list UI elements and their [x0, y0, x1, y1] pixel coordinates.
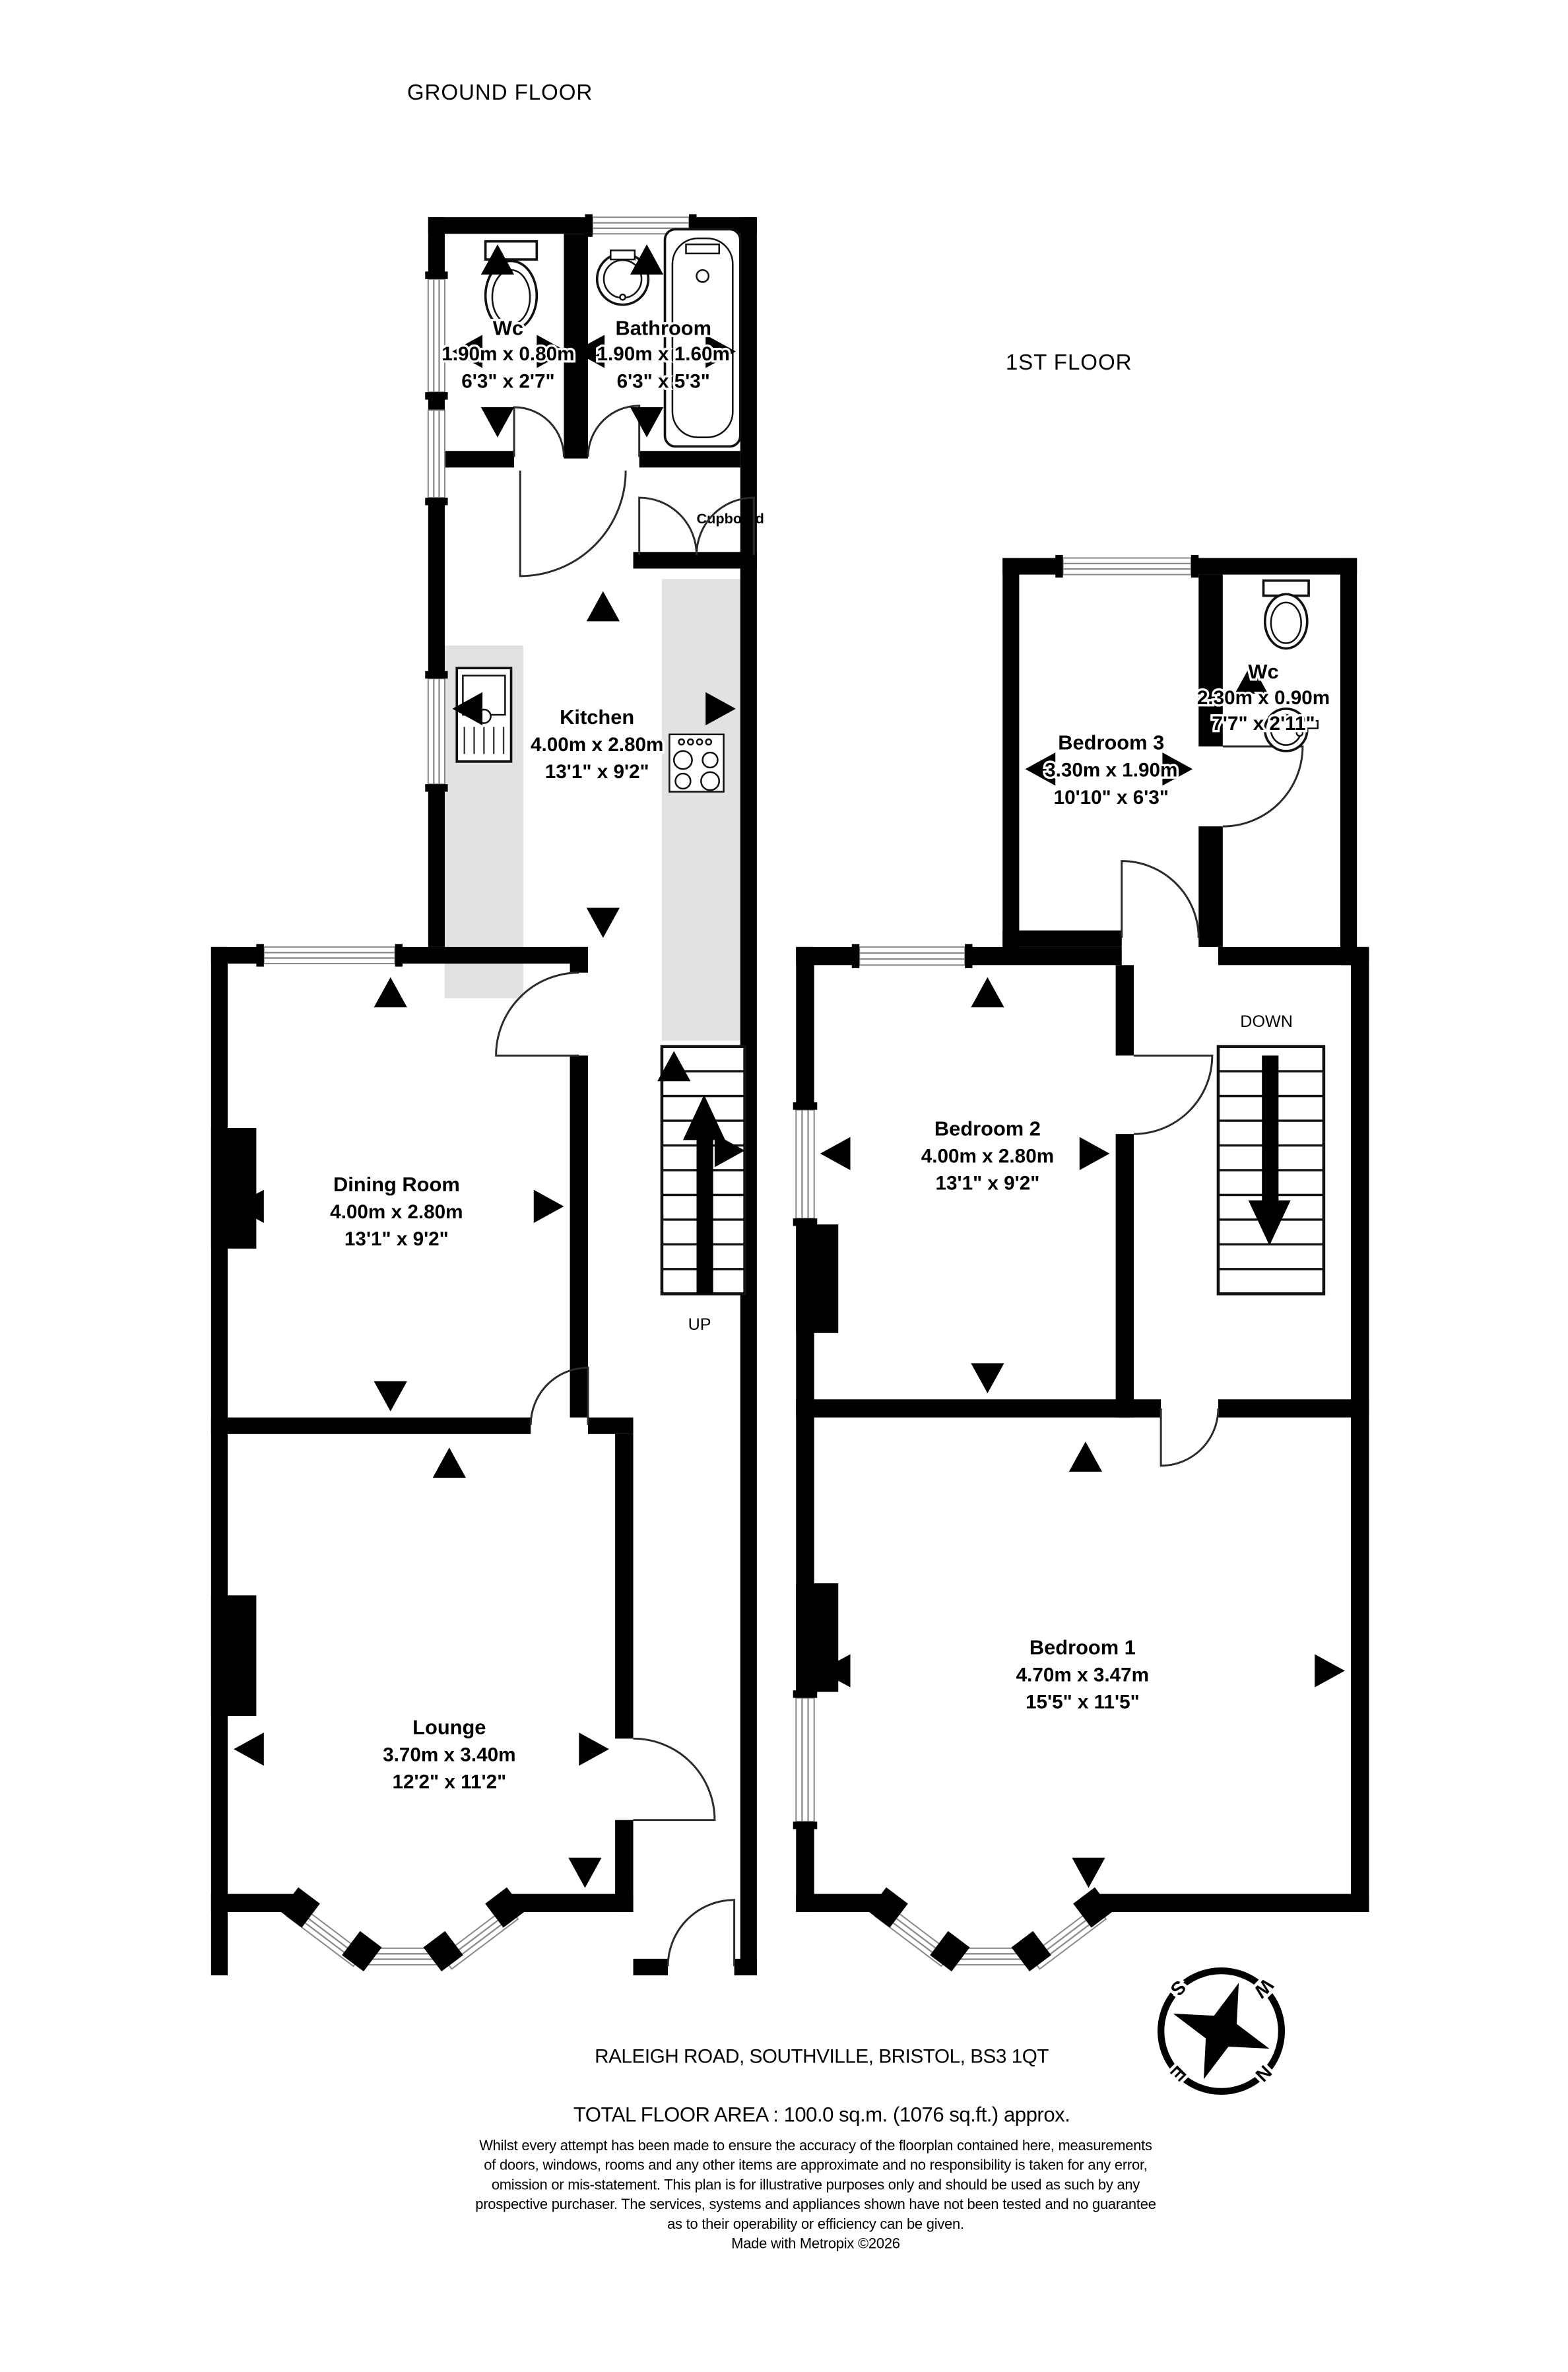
wc-door [514, 407, 564, 457]
wc-first-name: Wc [1248, 660, 1278, 683]
hall-kitchen-door [520, 471, 626, 576]
disclaimer-line: of doors, windows, rooms and any other i… [484, 2157, 1147, 2173]
stairs-down: DOWN [1218, 1012, 1324, 1294]
stairs-down-arrow-stem [1262, 1055, 1278, 1206]
wc-ground-name: Wc [493, 316, 523, 339]
bedroom3-name: Bedroom 3 [1058, 731, 1164, 754]
bedroom2-chimney-breast [796, 1224, 838, 1333]
bedroom1-imperial: 15'5" x 11'5" [1026, 1692, 1140, 1713]
bedroom2-metric: 4.00m x 2.80m [921, 1146, 1054, 1168]
bedroom2-name: Bedroom 2 [934, 1117, 1041, 1140]
dining-room-imperial: 13'1" x 9'2" [344, 1228, 449, 1250]
bedroom3-imperial: 10'10" x 6'3" [1054, 787, 1169, 808]
wc-first-imperial: 7'7" x 2'11" [1212, 713, 1315, 735]
kitchen-counter-right [662, 579, 740, 1040]
credit-line: Made with Metropix ©2026 [731, 2235, 900, 2252]
disclaimer-line: omission or mis-statement. This plan is … [492, 2176, 1140, 2192]
lounge-name: Lounge [412, 1715, 486, 1738]
bedroom1-bay-window [868, 1888, 1113, 1971]
ground-floor-plan: Cupboard [211, 214, 764, 1975]
floorplan-svg: GROUND FLOOR 1ST FLOOR Cupboard [0, 0, 1568, 2372]
bedroom2-imperial: 13'1" x 9'2" [936, 1173, 1040, 1195]
stairs-up-label: UP [688, 1315, 711, 1334]
dining-room-name: Dining Room [333, 1173, 460, 1196]
bathroom-door [588, 406, 639, 457]
property-address: RALEIGH ROAD, SOUTHVILLE, BRISTOL, BS3 1… [595, 2046, 1049, 2068]
stairs-down-label: DOWN [1240, 1012, 1293, 1031]
kitchen-imperial: 13'1" x 9'2" [545, 761, 649, 783]
bedroom3-metric: 3.30m x 1.90m [1045, 760, 1177, 781]
hall-window [425, 411, 447, 506]
bedroom2-side-window [793, 1102, 818, 1226]
wc-ground-metric: 1.90m x 0.80m [441, 343, 574, 365]
footer: RALEIGH ROAD, SOUTHVILLE, BRISTOL, BS3 1… [475, 2046, 1156, 2252]
wc-first-door [1223, 746, 1303, 826]
kitchen-name: Kitchen [560, 706, 634, 729]
wc-first-metric: 2.30m x 0.90m [1197, 687, 1330, 709]
bedroom3-door [1122, 861, 1199, 939]
kitchen-counters [445, 579, 740, 1040]
dining-window [256, 944, 403, 966]
bedroom2-top-window [852, 944, 973, 968]
wc-window [425, 271, 447, 399]
stairs-up-arrow-stem [696, 1134, 713, 1294]
wc-first-toilet [1264, 581, 1309, 649]
bedroom1-side-window [793, 1690, 818, 1829]
lounge-bay-window [280, 1888, 525, 1971]
wc-ground-imperial: 6'3" x 2'7" [461, 370, 554, 392]
bedroom1-metric: 4.70m x 3.47m [1016, 1664, 1149, 1686]
floorplan-page: GROUND FLOOR 1ST FLOOR Cupboard [0, 0, 1568, 2372]
total-floor-area: TOTAL FLOOR AREA : 100.0 sq.m. (1076 sq.… [573, 2103, 1070, 2126]
lounge-chimney-breast [211, 1595, 257, 1716]
disclaimer-line: as to their operability or efficiency ca… [667, 2216, 964, 2232]
stairs-up: UP [657, 1047, 745, 1334]
bathroom-name: Bathroom [615, 316, 711, 339]
cupboard-door-left [639, 498, 697, 555]
disclaimer-line: prospective purchaser. The services, sys… [475, 2196, 1156, 2212]
lounge-imperial: 12'2" x 11'2" [392, 1771, 506, 1793]
disclaimer-line: Whilst every attempt has been made to en… [479, 2137, 1152, 2154]
first-floor-title: 1ST FLOOR [1006, 350, 1132, 375]
bathroom-imperial: 6'3" x 5'3" [617, 370, 710, 392]
kitchen-hob [669, 735, 723, 792]
bedroom2-door [1134, 1055, 1212, 1134]
front-door [668, 1900, 735, 1967]
bedroom3-window [1055, 555, 1198, 577]
dining-room-metric: 4.00m x 2.80m [330, 1201, 463, 1223]
bathroom-metric: 1.90m x 1.60m [597, 343, 730, 365]
ground-floor-title: GROUND FLOOR [407, 81, 593, 105]
kitchen-metric: 4.00m x 2.80m [531, 734, 663, 756]
compass-rose: N E S W [1156, 1965, 1287, 2097]
first-floor-plan: DOWN Bedro [793, 555, 1369, 1971]
bedroom1-name: Bedroom 1 [1029, 1635, 1136, 1659]
lounge-metric: 3.70m x 3.40m [383, 1744, 515, 1766]
bedroom1-door [1161, 1408, 1218, 1466]
dining-chimney-breast [211, 1128, 257, 1249]
kitchen-window [425, 671, 447, 792]
hall-lounge-door [634, 1738, 715, 1820]
